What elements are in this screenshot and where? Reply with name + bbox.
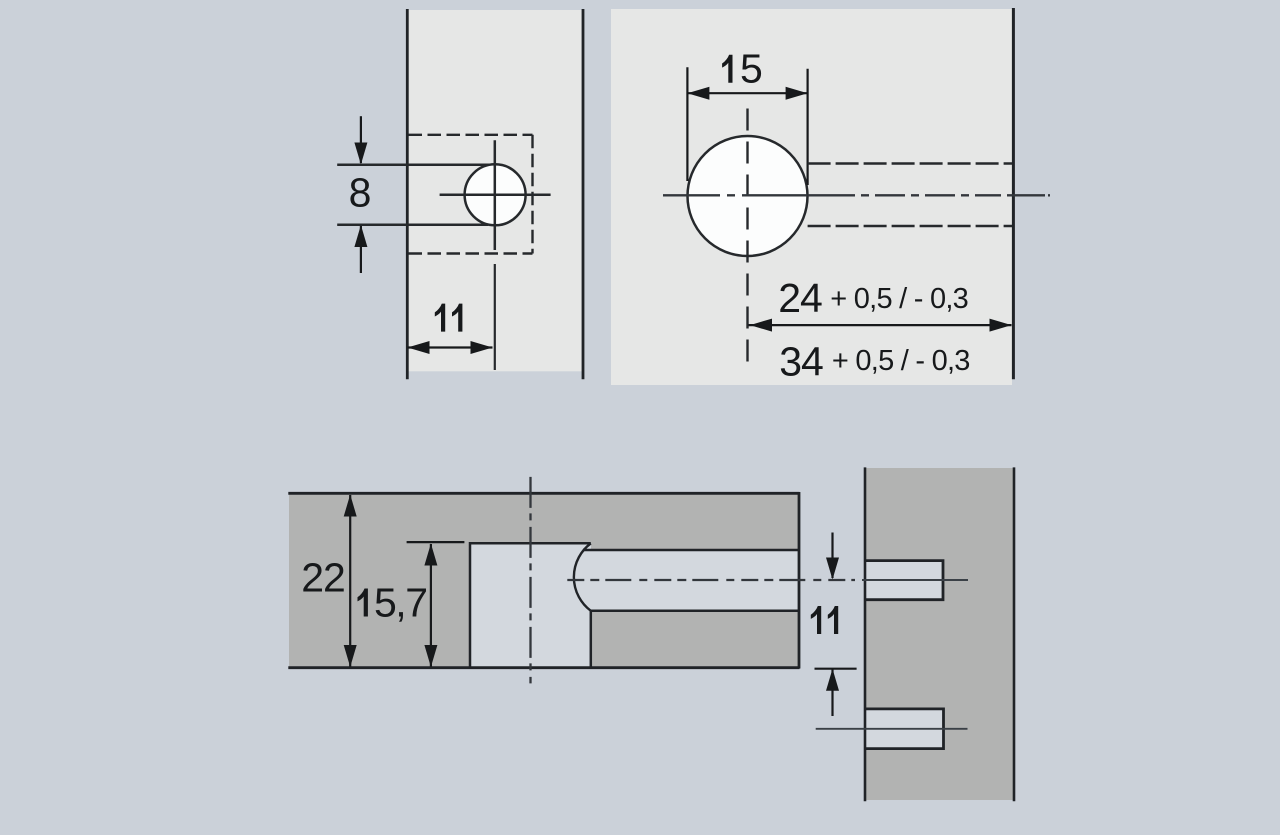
svg-text:22: 22 [301, 555, 345, 601]
svg-text:+ 0,5 / - 0,3: + 0,5 / - 0,3 [830, 283, 968, 315]
svg-text:5,7: 5,7 [374, 580, 427, 626]
svg-text:8: 8 [349, 170, 372, 216]
svg-text:34: 34 [779, 338, 823, 384]
svg-text:+ 0,5 / - 0,3: + 0,5 / - 0,3 [832, 345, 970, 377]
svg-text:24: 24 [778, 275, 822, 321]
svg-text:5: 5 [740, 46, 763, 92]
